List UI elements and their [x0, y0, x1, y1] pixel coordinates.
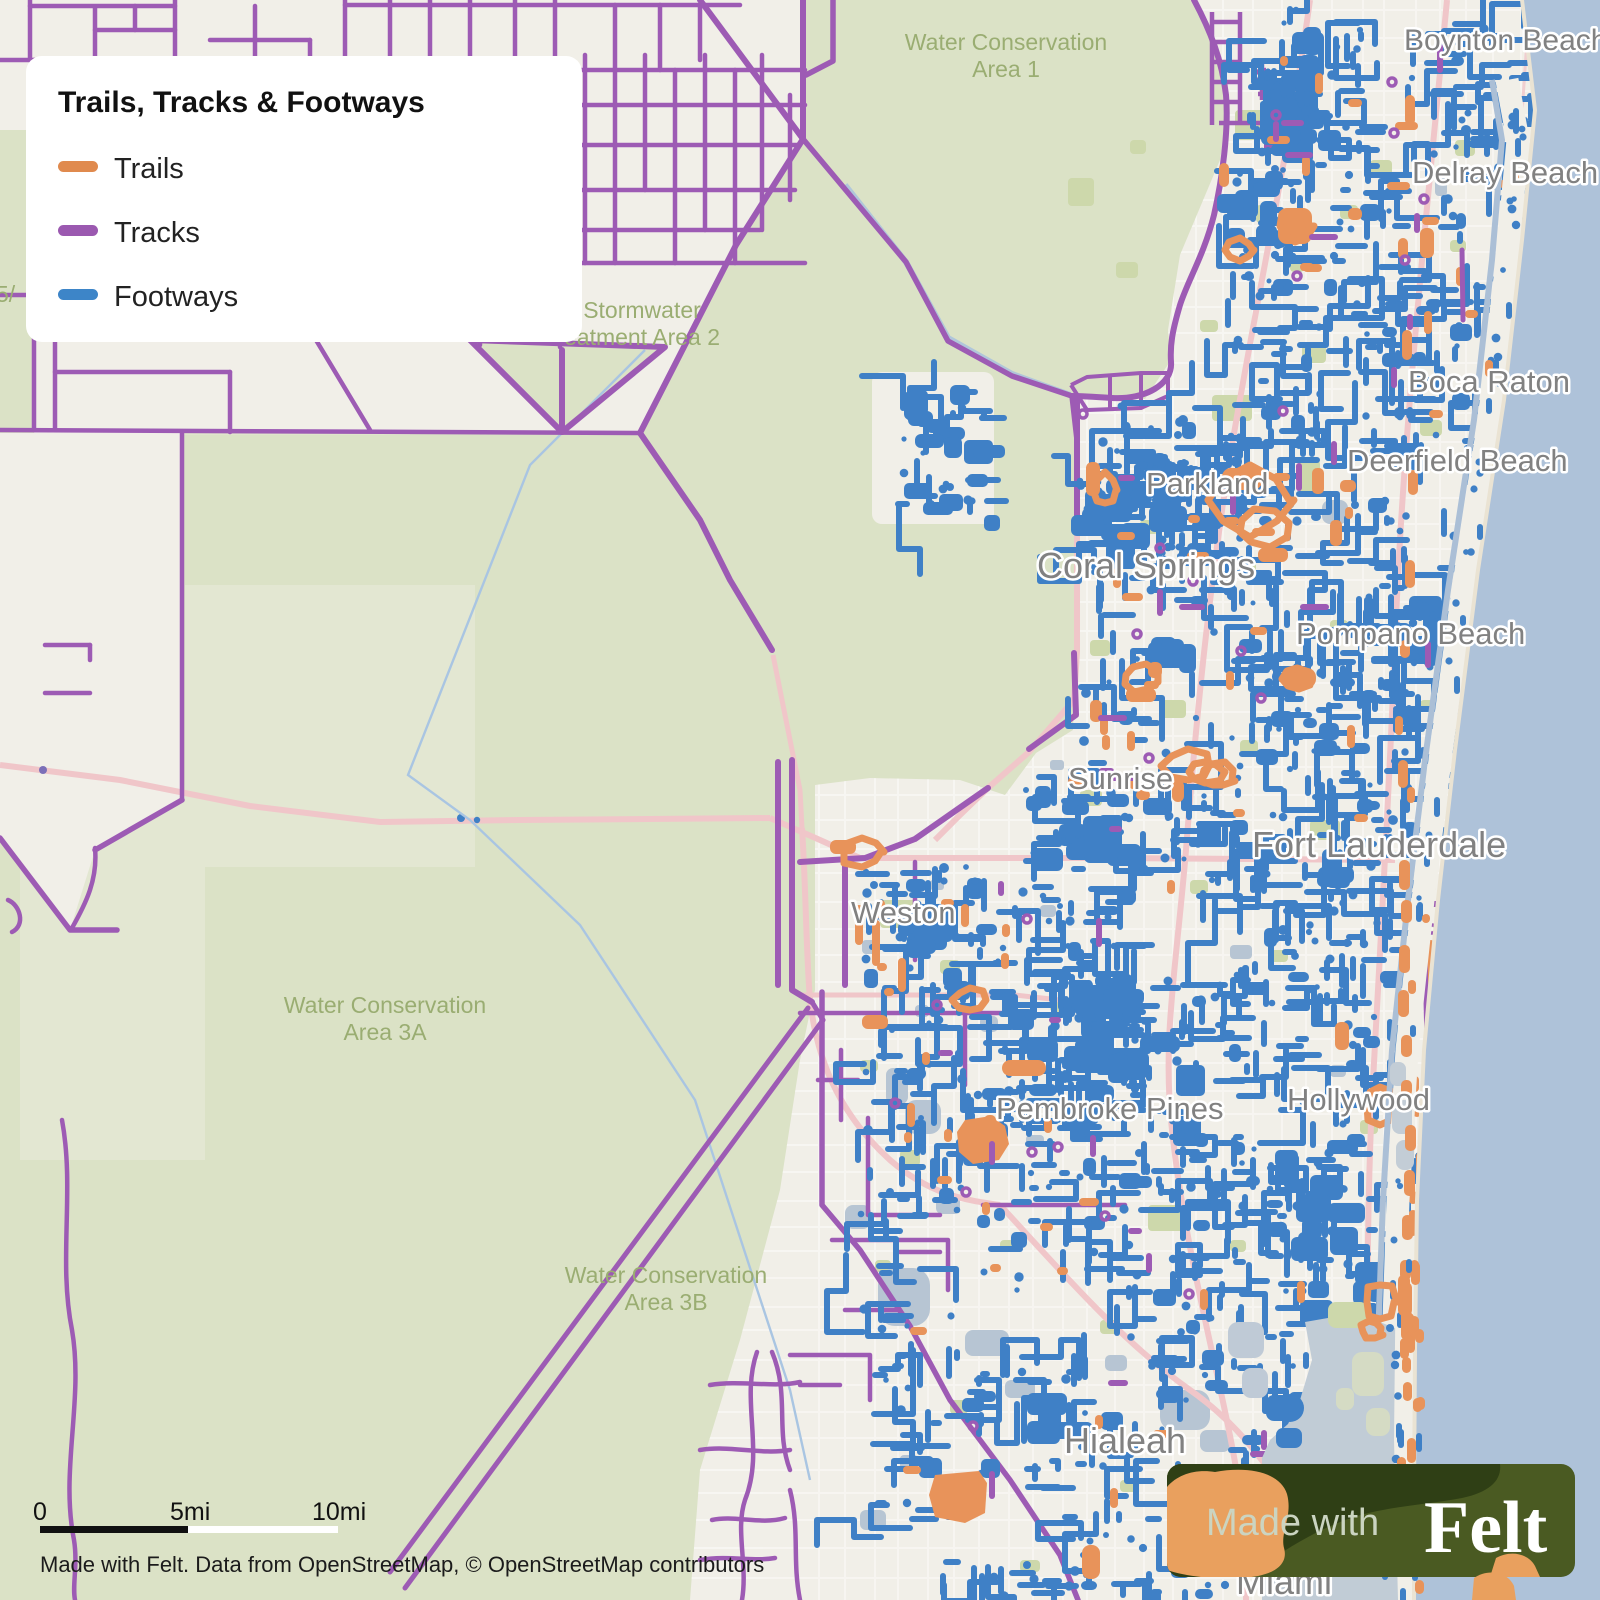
svg-text:Pembroke Pines: Pembroke Pines [996, 1091, 1223, 1126]
svg-text:Hialeah: Hialeah [1064, 1420, 1186, 1461]
svg-text:Made with: Made with [1206, 1502, 1379, 1544]
svg-text:5mi: 5mi [170, 1498, 210, 1526]
svg-text:Trails: Trails [114, 153, 184, 185]
svg-text:Delray Beach: Delray Beach [1412, 155, 1598, 190]
svg-text:Sunrise: Sunrise [1068, 761, 1173, 796]
svg-text:Coral Springs: Coral Springs [1037, 545, 1255, 586]
svg-text:Fort Lauderdale: Fort Lauderdale [1252, 824, 1506, 865]
svg-text:Deerfield Beach: Deerfield Beach [1347, 443, 1568, 478]
svg-text:Felt: Felt [1424, 1487, 1548, 1569]
svg-text:10mi: 10mi [312, 1498, 366, 1526]
svg-text:Boynton Beach: Boynton Beach [1404, 24, 1600, 57]
svg-text:Boca Raton: Boca Raton [1408, 364, 1570, 399]
svg-text:Footways: Footways [114, 281, 238, 313]
svg-text:Stormwatereatment Area 2: Stormwatereatment Area 2 [564, 297, 720, 350]
svg-text:Tracks: Tracks [114, 217, 200, 249]
svg-text:0: 0 [33, 1498, 47, 1526]
svg-text:Made with Felt. Data from Open: Made with Felt. Data from OpenStreetMap,… [40, 1552, 764, 1577]
svg-text:Weston: Weston [851, 895, 956, 930]
svg-text:Hollywood: Hollywood [1287, 1082, 1430, 1117]
svg-text:Parkland: Parkland [1146, 466, 1268, 501]
svg-text:Trails, Tracks & Footways: Trails, Tracks & Footways [58, 86, 425, 119]
svg-text:Pompano Beach: Pompano Beach [1296, 616, 1525, 651]
svg-text:5/: 5/ [0, 281, 16, 307]
